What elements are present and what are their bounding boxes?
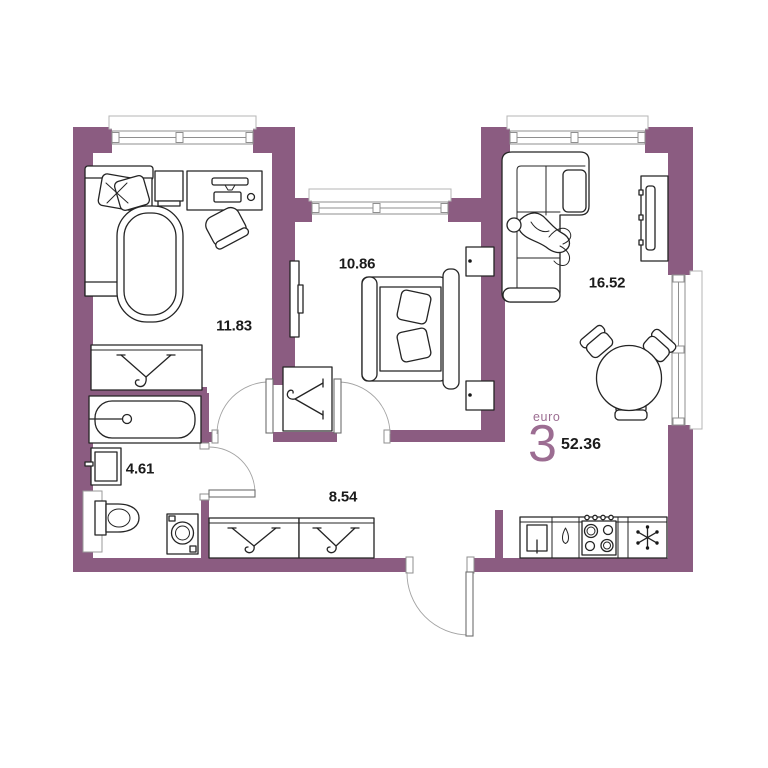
- double-bed: [362, 269, 459, 389]
- door-entrance: [406, 557, 474, 636]
- room-label-bedroom1: 11.83: [216, 318, 252, 335]
- door-bathroom: [200, 443, 255, 500]
- nightstand: [466, 381, 494, 410]
- kitchen-sink-icon: [527, 525, 547, 553]
- door-bedroom2: [334, 379, 390, 443]
- hallway-furniture: [209, 518, 374, 558]
- tv-console: [639, 176, 668, 261]
- window-bedroom1: [109, 116, 256, 153]
- bedroom1-furniture: [85, 166, 262, 390]
- room-label-living: 16.52: [589, 275, 626, 292]
- toilet: [95, 501, 139, 535]
- nightstand: [466, 247, 494, 276]
- window-bedroom2: [309, 189, 451, 222]
- wardrobe-bedroom2: [283, 367, 332, 431]
- bedroom2-furniture: [283, 247, 494, 431]
- tv-panel: [290, 261, 303, 337]
- floor-plan-page: 11.83 10.86 16.52 4.61 8.54 euro 3 52.36: [0, 0, 768, 768]
- desk-chair: [203, 204, 250, 250]
- floor-plan-drawing: [0, 0, 768, 768]
- washing-machine: [167, 514, 198, 554]
- kitchen-counter: [520, 515, 667, 558]
- desk: [187, 171, 262, 210]
- hall-wardrobe: [299, 518, 374, 558]
- total-area-label: 52.36: [561, 436, 601, 454]
- duvet: [117, 206, 183, 322]
- tv-stand: [155, 171, 183, 206]
- room-label-bedroom2: 10.86: [339, 256, 376, 273]
- door-bedroom1: [212, 379, 273, 443]
- washbasin: [85, 448, 121, 485]
- hall-wardrobe: [209, 518, 299, 558]
- hob-burners-icon: [582, 515, 616, 555]
- bathtub: [89, 396, 201, 443]
- wardrobe-bedroom1: [91, 345, 202, 390]
- room-label-hallway: 8.54: [329, 489, 357, 506]
- round-dining-table: [597, 346, 662, 411]
- room-label-bathroom: 4.61: [126, 461, 154, 478]
- window-living: [507, 116, 648, 153]
- logo-room-count: 3: [528, 421, 557, 469]
